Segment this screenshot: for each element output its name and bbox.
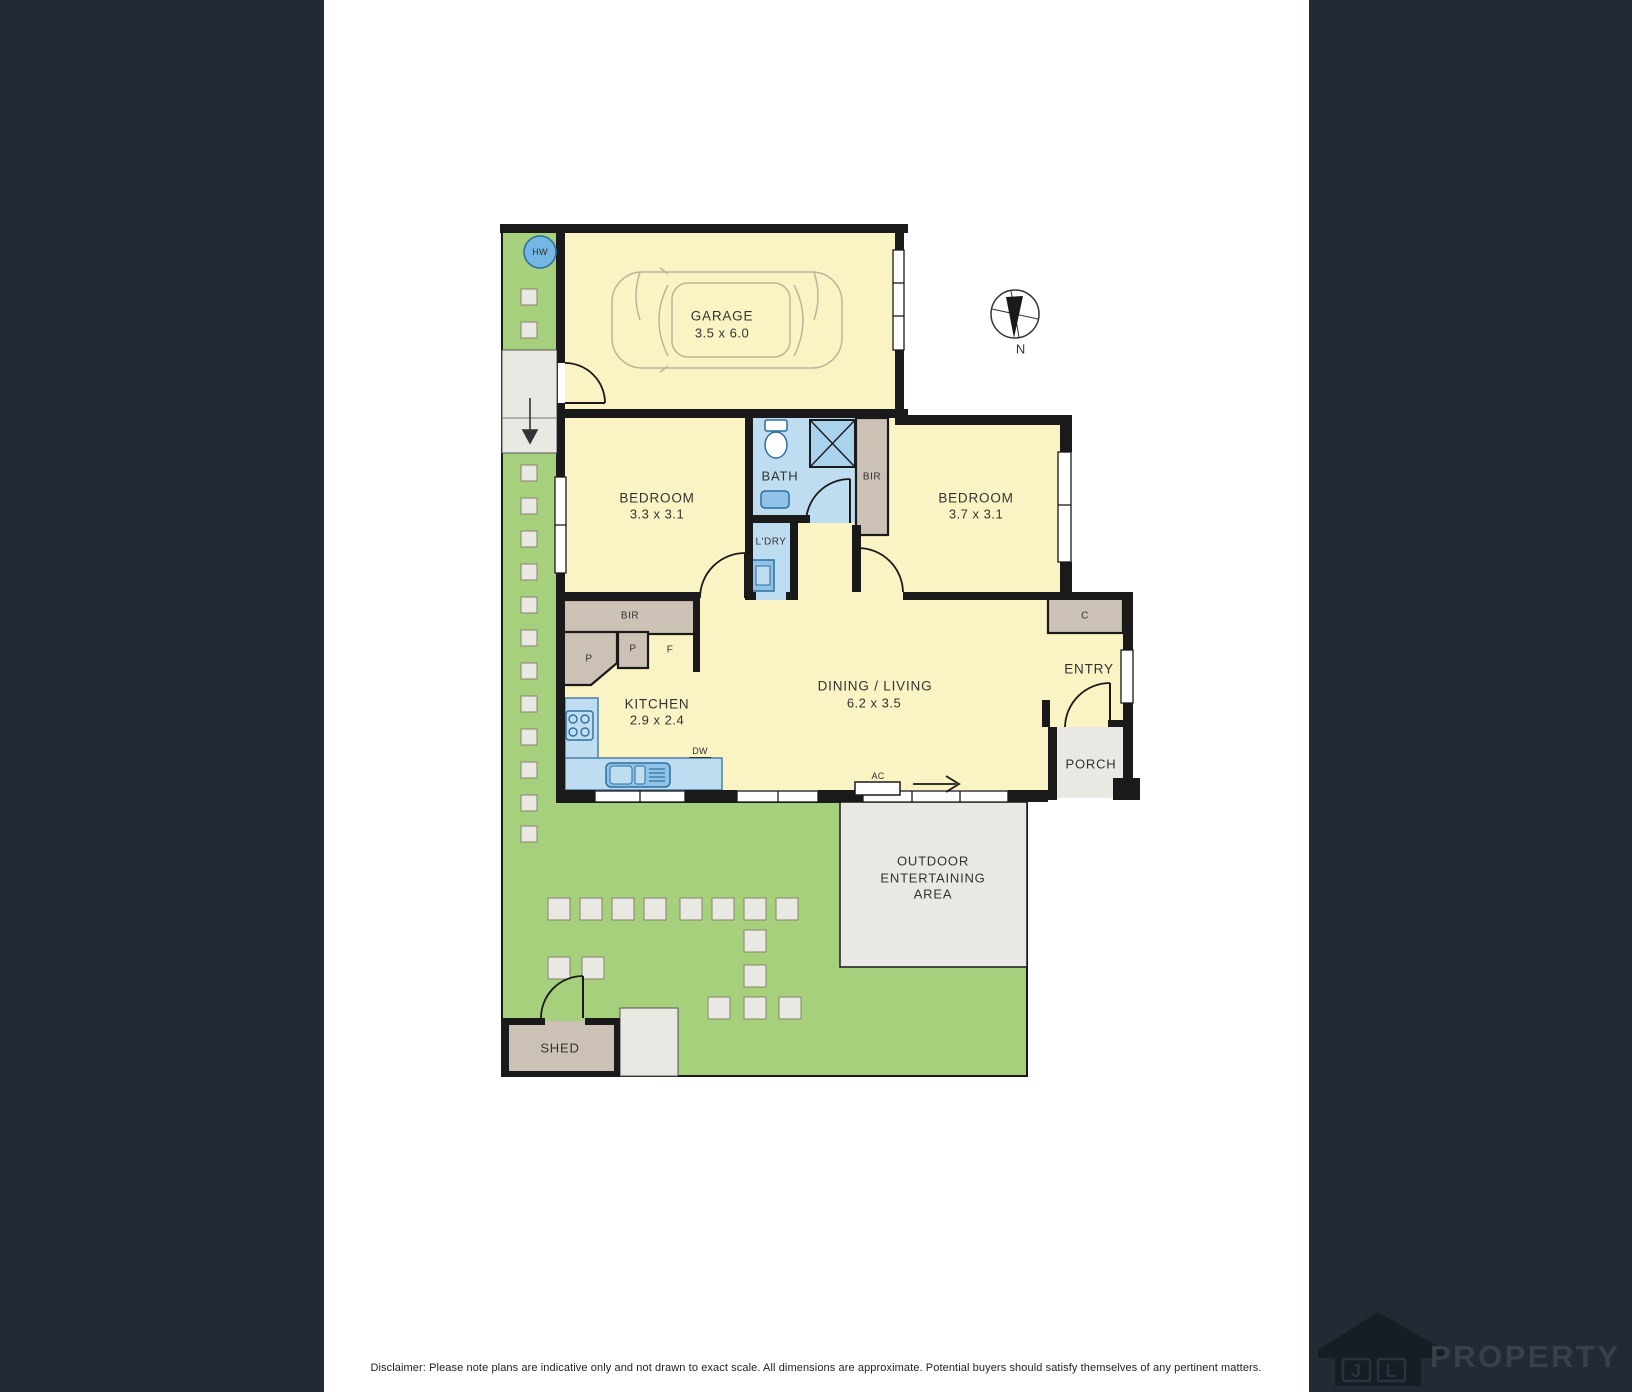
kitchen-dims: 2.9 x 2.4: [630, 713, 684, 728]
ac-label: AC: [871, 771, 884, 781]
pantry-small-label: P: [629, 644, 636, 655]
bedroom-right-dims: 3.7 x 3.1: [949, 507, 1003, 522]
porch-label: PORCH: [1066, 757, 1117, 772]
bedroom-right-label: BEDROOM: [938, 491, 1013, 506]
cooktop-icon: [566, 711, 593, 740]
bedroom-left-dims: 3.3 x 3.1: [630, 507, 684, 522]
bath-label: BATH: [762, 469, 799, 484]
logo-letter-j: J: [1351, 1361, 1361, 1381]
brand-name: PROPERTY: [1430, 1339, 1621, 1375]
outdoor-line1: OUTDOOR: [897, 853, 969, 868]
garage-dims: 3.5 x 6.0: [695, 326, 749, 341]
floorplan-page: GARAGE 3.5 x 6.0 BEDROOM 3.3 x 3.1 BEDRO…: [0, 0, 1632, 1392]
bir-bath-label: BIR: [863, 472, 881, 483]
sink-icon: [606, 763, 670, 787]
bedroom-left-label: BEDROOM: [619, 491, 694, 506]
basin-icon: [761, 491, 789, 508]
garage-label: GARAGE: [691, 309, 754, 324]
hot-water-label: HW: [532, 247, 548, 257]
pantry-large-label: P: [585, 654, 592, 665]
washer-icon: [752, 560, 774, 591]
dishwasher-label: DW: [689, 746, 711, 756]
disclaimer-text: Disclaimer: Please note plans are indica…: [370, 1362, 1261, 1374]
fridge-label: F: [667, 645, 674, 656]
dining-living-dims: 6.2 x 3.5: [847, 696, 901, 711]
dining-living-label: DINING / LIVING: [818, 679, 933, 694]
shed-path: [620, 1008, 678, 1076]
entry-label: ENTRY: [1064, 662, 1114, 677]
shed-label: SHED: [540, 1041, 579, 1056]
laundry-label: L'DRY: [756, 537, 787, 548]
logo-letter-l: L: [1386, 1361, 1397, 1381]
outdoor-line2: ENTERTAINING: [880, 870, 985, 885]
compass-icon: [991, 290, 1039, 338]
brand-logo: J L PROPERTY: [1318, 1308, 1628, 1388]
outdoor-area-label: OUTDOOR ENTERTAINING AREA: [880, 853, 985, 903]
house-logo-icon: J L: [1318, 1308, 1448, 1388]
floorplan-graphic: [0, 0, 1632, 1392]
outdoor-line3: AREA: [914, 886, 953, 901]
ac-unit: [855, 782, 900, 795]
cupboard-label: C: [1081, 611, 1089, 622]
kitchen-label: KITCHEN: [625, 697, 690, 712]
bir-hall-label: BIR: [621, 611, 639, 622]
compass-north-label: N: [1016, 342, 1026, 357]
toilet-icon: [765, 420, 787, 458]
